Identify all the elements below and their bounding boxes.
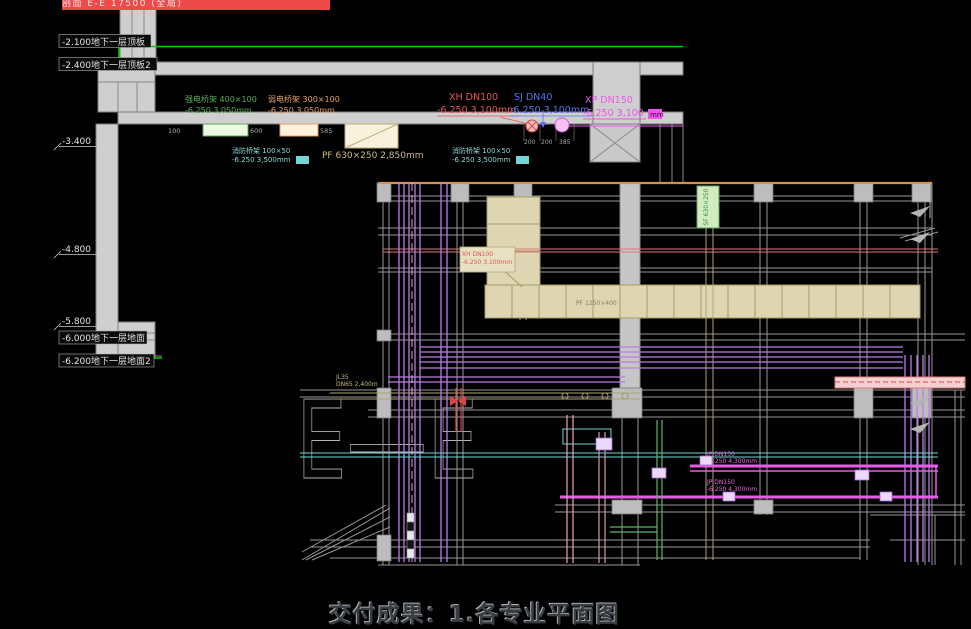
terminal-box bbox=[700, 456, 712, 465]
fire-tray-left-elev: -6.250 3,500mm bbox=[232, 156, 291, 164]
scale-segment bbox=[407, 531, 414, 540]
jl-pipe-label: JL35 bbox=[335, 374, 349, 381]
scale-segment bbox=[407, 540, 414, 549]
terminal-box bbox=[652, 468, 666, 478]
fire-tray-right-elev: -6.250 3,500mm bbox=[452, 156, 511, 164]
duct-vertical-run bbox=[487, 197, 540, 289]
strong-tray-elev: -6.250 3,050mm bbox=[185, 106, 252, 115]
strong-tray-symbol bbox=[203, 124, 248, 136]
section-flag-icon bbox=[910, 206, 930, 217]
column bbox=[754, 500, 773, 514]
weak-tray-symbol bbox=[280, 124, 318, 136]
section-left-wall bbox=[96, 124, 118, 355]
plan-columns bbox=[377, 183, 931, 561]
section-flag-icon bbox=[910, 232, 930, 243]
jp-upper-elev: -6.250 4,300mm bbox=[707, 458, 757, 465]
sj-pipe-elev: -6.250 3,100mm bbox=[510, 105, 589, 116]
duct-run-label: PF 1250×400 bbox=[576, 300, 617, 307]
weak-tray-elev: -6.250 3,050mm bbox=[268, 106, 335, 115]
pf-duct-label: PF 630×250 2,850mm bbox=[322, 151, 424, 161]
column bbox=[377, 330, 391, 341]
column bbox=[451, 183, 469, 202]
column bbox=[377, 183, 391, 202]
elevation-label: -2.400地下一层顶板2 bbox=[62, 59, 151, 71]
elevation-label: -5.800 bbox=[62, 317, 91, 327]
fire-tray-right-highlight bbox=[516, 156, 529, 164]
selection-banner: 剖面 E-E 17500 (全局) bbox=[62, 0, 330, 10]
terminal-box bbox=[723, 492, 735, 501]
xp-pipe-elev: -6.250 3,100 bbox=[583, 108, 644, 119]
xp-pipe-section-symbol bbox=[555, 118, 569, 132]
fitting bbox=[582, 393, 588, 399]
pf-duct-annotation: PF 630×250 2,850mm bbox=[322, 124, 424, 161]
dim-text: 200 bbox=[541, 139, 553, 146]
section-flag-icon bbox=[910, 422, 930, 433]
terminal-box bbox=[855, 470, 869, 480]
xh-pipe-elev: -6.250 3,100mm bbox=[437, 105, 516, 116]
weak-tray-label: 弱电桥架 300×100 bbox=[268, 94, 340, 104]
xh-branch-label: XH DN100 bbox=[462, 251, 493, 258]
caption-title: 交付成果：1.各专业平面图 bbox=[329, 595, 620, 629]
column bbox=[612, 500, 642, 514]
xp-pipe-label: XP DN150 bbox=[585, 95, 633, 106]
dim-text: 600 bbox=[250, 127, 262, 135]
elevation-label: -6.000地下一层地面 bbox=[62, 332, 145, 344]
scale-segment bbox=[407, 513, 414, 522]
dim-text: 200 bbox=[524, 139, 536, 146]
dim-text: 100 bbox=[168, 127, 180, 135]
sj-pipe-label: SJ DN40 bbox=[514, 92, 552, 103]
dim-text: 385 bbox=[559, 139, 571, 146]
xp-unit-text: mm bbox=[650, 111, 664, 119]
column bbox=[754, 183, 773, 202]
elevation-label: -3.400 bbox=[62, 137, 91, 147]
elevation-label: -2.100地下一层顶板 bbox=[62, 36, 145, 48]
strong-tray-label: 强电桥架 400×100 bbox=[185, 94, 257, 104]
column bbox=[912, 183, 931, 202]
column bbox=[377, 535, 391, 561]
scale-bar bbox=[407, 513, 414, 558]
dim-text: 585 bbox=[320, 127, 332, 135]
fire-tray-left-highlight bbox=[296, 156, 309, 164]
jp-lower-label: JP DN150 bbox=[706, 479, 735, 486]
elevation-label: -4.800 bbox=[62, 245, 91, 255]
fitting bbox=[562, 393, 568, 399]
fire-tray-left-label: 消防桥架 100×50 bbox=[232, 146, 290, 155]
fire-tray-right-label: 消防桥架 100×50 bbox=[452, 146, 510, 155]
xh-branch-elev: -6.250 3,100mm bbox=[462, 259, 512, 266]
jl-pipe-elev: DN65 2,400m bbox=[336, 381, 378, 388]
elevation-label: -6.200地下一层地面2 bbox=[62, 355, 151, 367]
plan-view: PF 1250×400 SF 630×250 XH DN100 -6.250 3… bbox=[300, 183, 965, 565]
scale-segment bbox=[407, 522, 414, 531]
scale-segment bbox=[407, 549, 414, 558]
green-drain-pipes bbox=[610, 420, 662, 560]
pink-riser-a bbox=[567, 415, 573, 563]
duct-horizontal-run bbox=[485, 285, 920, 318]
sj-arrowhead-icon bbox=[540, 122, 546, 128]
terminal-box bbox=[880, 492, 892, 501]
duct-vertical-label: SF 630×250 bbox=[703, 188, 710, 225]
terminal-box bbox=[596, 438, 612, 450]
fitting bbox=[602, 393, 608, 399]
drawing-canvas: -2.100地下一层顶板 -2.400地下一层顶板2 -3.400 -4.800… bbox=[0, 0, 971, 629]
column bbox=[854, 388, 873, 418]
xh-pipe-label: XH DN100 bbox=[449, 92, 498, 103]
column bbox=[854, 183, 873, 202]
selection-banner-text: 剖面 E-E 17500 (全局) bbox=[62, 0, 330, 9]
cad-viewport: -2.100地下一层顶板 -2.400地下一层顶板2 -3.400 -4.800… bbox=[0, 0, 971, 629]
